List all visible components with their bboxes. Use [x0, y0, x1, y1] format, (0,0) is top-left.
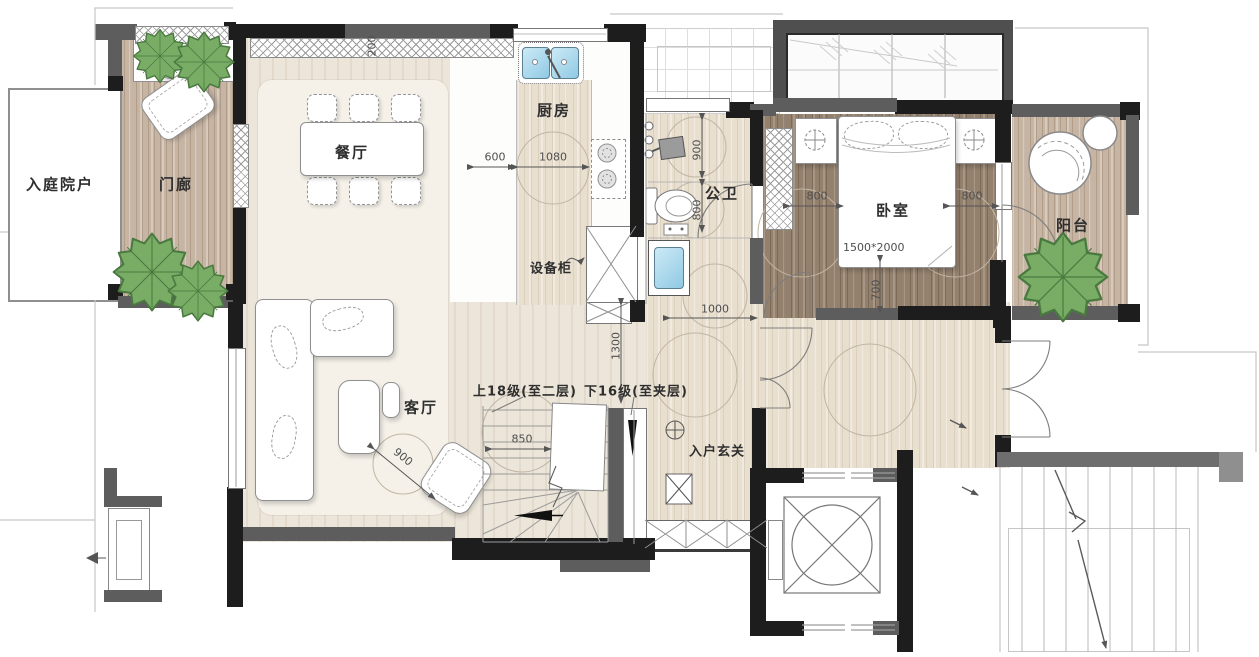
room-label-balcony: 阳台	[1056, 215, 1090, 236]
wall	[873, 468, 899, 482]
wall	[750, 468, 766, 636]
floor-plan: 入庭院户 门廊 餐厅 厨房 设备柜 公卫 卧室 阳台 客厅 入户玄关 上18级(…	[0, 0, 1259, 657]
dining-chair	[307, 94, 337, 122]
wall	[233, 24, 347, 38]
equipment-cabinet	[586, 226, 638, 304]
wall	[108, 76, 123, 91]
room-label-courtyard: 入庭院户	[26, 174, 94, 195]
coffee-table	[338, 380, 380, 454]
stair-note-down: 下16级(至夹层)	[584, 381, 688, 400]
bathroom-window	[646, 98, 730, 112]
room-label-foyer: 入户玄关	[689, 441, 745, 460]
wall	[104, 590, 162, 602]
kitchen-window	[513, 28, 608, 42]
wall	[750, 468, 804, 483]
living-window	[228, 348, 246, 489]
wall	[243, 527, 455, 541]
room-label-living: 客厅	[404, 397, 438, 418]
wall	[630, 32, 644, 237]
room-label-bedroom: 卧室	[876, 200, 910, 221]
wardrobe-icon	[765, 128, 793, 230]
wall	[773, 98, 897, 112]
wall	[228, 302, 243, 348]
bed-size-label: 1500*2000	[843, 241, 905, 254]
sink-basin-icon	[551, 47, 579, 79]
equipment-cabinet-small	[586, 302, 632, 324]
wall	[1012, 104, 1126, 117]
wall	[452, 538, 655, 560]
porch-dining-window	[233, 124, 249, 208]
wall	[995, 315, 1011, 343]
porch-window	[135, 26, 229, 44]
exterior-pier	[1219, 452, 1243, 482]
wall	[897, 450, 913, 652]
side-table	[382, 382, 400, 418]
dim-stair-well: 1300	[610, 332, 623, 360]
bay-window-glass	[786, 33, 1004, 103]
wall	[630, 300, 645, 322]
exterior-stair-outline	[1008, 528, 1190, 652]
dim-cabinet-depth: 200	[366, 36, 379, 57]
bedroom-window	[995, 162, 1012, 210]
room-label-bathroom: 公卫	[705, 183, 739, 204]
wall	[750, 110, 763, 186]
exterior-wall	[997, 452, 1219, 467]
dining-chair	[349, 94, 379, 122]
wall	[233, 206, 246, 304]
stove-icon	[591, 139, 626, 199]
room-label-kitchen: 厨房	[537, 100, 571, 121]
room-label-dining: 餐厅	[335, 142, 369, 163]
wall	[1126, 115, 1139, 215]
dim-bath-wc: 800	[691, 200, 704, 221]
wall	[227, 487, 243, 607]
dim-kitchen-left: 600	[485, 151, 506, 164]
dining-chair	[391, 94, 421, 122]
ac-unit-inner	[116, 520, 142, 580]
wall	[104, 496, 162, 507]
wall	[560, 560, 650, 572]
dim-bed-foot: 700	[870, 280, 883, 301]
wall	[898, 306, 996, 320]
wall	[990, 260, 1006, 312]
room-label-porch: 门廊	[159, 174, 193, 195]
elevator-panel	[768, 520, 783, 580]
courtyard-area	[8, 88, 122, 302]
ac-arrow-icon	[86, 552, 106, 564]
balcony-floor	[1012, 116, 1128, 310]
wall	[873, 621, 899, 635]
dim-bed-right: 800	[962, 190, 983, 203]
nightstand	[795, 118, 837, 164]
dim-bath-shower: 900	[691, 140, 704, 161]
wall	[750, 238, 763, 304]
outdoor-outline	[657, 46, 771, 92]
elevator-cab-area	[766, 483, 897, 621]
dining-chair	[391, 177, 421, 205]
wall	[750, 621, 804, 636]
stair-note-up: 上18级(至二层)	[473, 381, 577, 400]
dim-kitchen-span: 1080	[539, 151, 567, 164]
dining-chair	[349, 177, 379, 205]
washing-machine-door	[654, 247, 684, 289]
sink-basin-icon	[522, 47, 550, 79]
dim-stair-width: 850	[512, 433, 533, 446]
room-label-equipment-cabinet: 设备柜	[530, 258, 572, 277]
dining-chair	[307, 177, 337, 205]
dim-hall-width: 1000	[701, 303, 729, 316]
wall	[995, 112, 1011, 162]
dim-bed-left: 800	[807, 190, 828, 203]
wall	[233, 26, 246, 124]
wall	[752, 408, 766, 470]
nightstand	[954, 118, 996, 164]
wall	[118, 296, 233, 308]
wall	[608, 408, 623, 542]
dining-cabinet-row	[250, 38, 514, 58]
wall	[108, 24, 122, 78]
stair-railing	[623, 408, 647, 548]
wall	[1118, 304, 1140, 322]
wall	[1012, 306, 1126, 320]
